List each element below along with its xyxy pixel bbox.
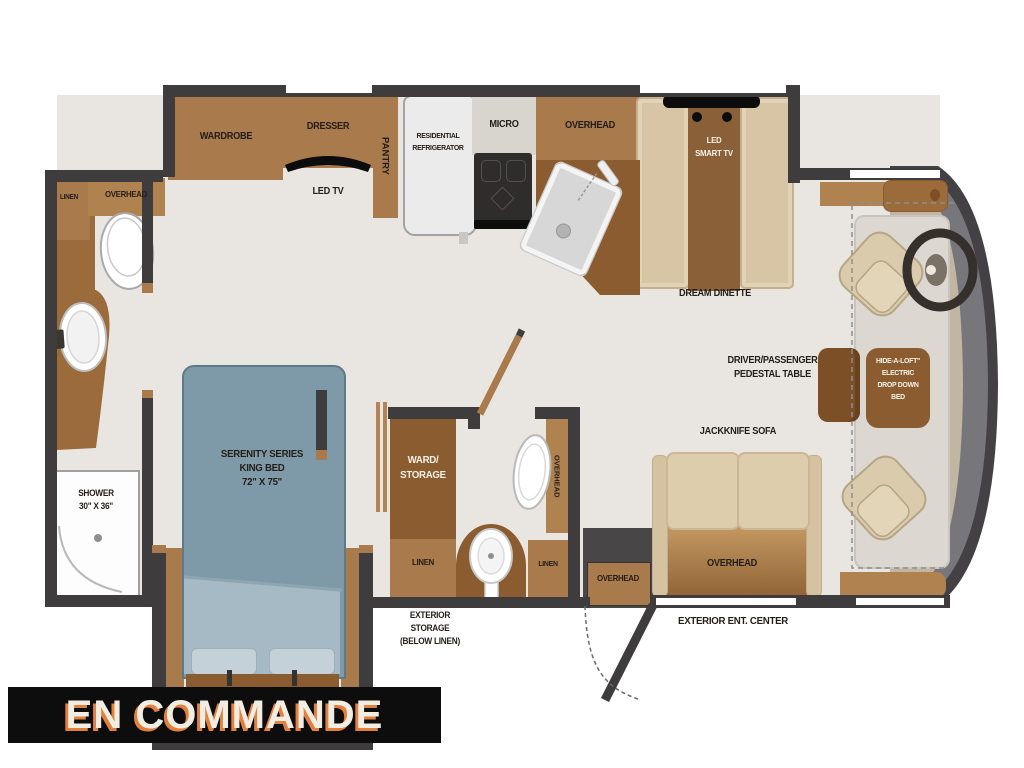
label-ext-storage-2: STORAGE — [390, 624, 471, 634]
label-bed-size: 72" X 75" — [198, 477, 327, 489]
label-ped-table-2: PEDESTAL TABLE — [706, 369, 839, 380]
label-ext-storage-3: (BELOW LINEN) — [390, 637, 471, 647]
bedroom-door-leaf — [480, 336, 519, 414]
label-bed-2: KING BED — [198, 463, 327, 475]
label-led-tv: LED TV — [293, 186, 363, 197]
label-dinette-tv-1: LED — [688, 136, 740, 145]
label-sofa-overhead: OVERHEAD — [684, 558, 780, 569]
label-micro: MICRO — [475, 119, 532, 130]
label-pantry: PANTRY — [372, 97, 398, 215]
label-dinette-tv-2: SMART TV — [688, 149, 740, 158]
rv-floorplan: WARDROBE DRESSER PANTRY LED TV RESIDENTI… — [0, 0, 1024, 768]
label-fridge-2: REFRIGERATOR — [408, 144, 469, 152]
label-loft-4: BED — [870, 393, 925, 401]
label-mid-linen-right: LINEN — [530, 560, 567, 568]
bedroom-door-tip — [519, 330, 522, 336]
label-ward-1: WARD/ — [394, 455, 453, 467]
label-wardrobe: WARDROBE — [174, 131, 277, 142]
label-shower-size: 30" X 36" — [63, 502, 129, 512]
bed-blanket-fold — [184, 577, 342, 590]
label-kitchen-overhead: OVERHEAD — [544, 120, 636, 131]
status-banner-text: EN COMMANDE — [66, 693, 384, 738]
label-mid-overhead: OVERHEAD — [546, 420, 568, 532]
label-ward-2: STORAGE — [394, 470, 453, 482]
label-rear-overhead: OVERHEAD — [91, 190, 161, 199]
label-jackknife-sofa: JACKKNIFE SOFA — [670, 426, 806, 437]
label-ext-ent-center: EXTERIOR ENT. CENTER — [657, 616, 810, 628]
label-ped-table-1: DRIVER/PASSENGER — [706, 355, 839, 366]
label-dream-dinette: DREAM DINETTE — [646, 288, 784, 299]
status-banner: EN COMMANDE — [8, 687, 441, 743]
label-ext-storage-1: EXTERIOR — [390, 611, 471, 621]
label-entry-overhead: OVERHEAD — [589, 574, 648, 583]
label-bed-1: SERENITY SERIES — [198, 449, 327, 461]
entry-door-leaf — [607, 609, 651, 696]
label-rear-linen: LINEN — [52, 194, 87, 202]
label-mid-linen-left: LINEN — [396, 558, 449, 567]
label-shower: SHOWER — [63, 489, 129, 499]
label-loft-3: DROP DOWN — [870, 381, 925, 389]
label-fridge-1: RESIDENTIAL — [408, 132, 469, 140]
label-dresser: DRESSER — [288, 121, 367, 132]
label-loft-2: ELECTRIC — [870, 369, 925, 377]
label-loft-1: HIDE-A-LOFT" — [870, 357, 925, 365]
